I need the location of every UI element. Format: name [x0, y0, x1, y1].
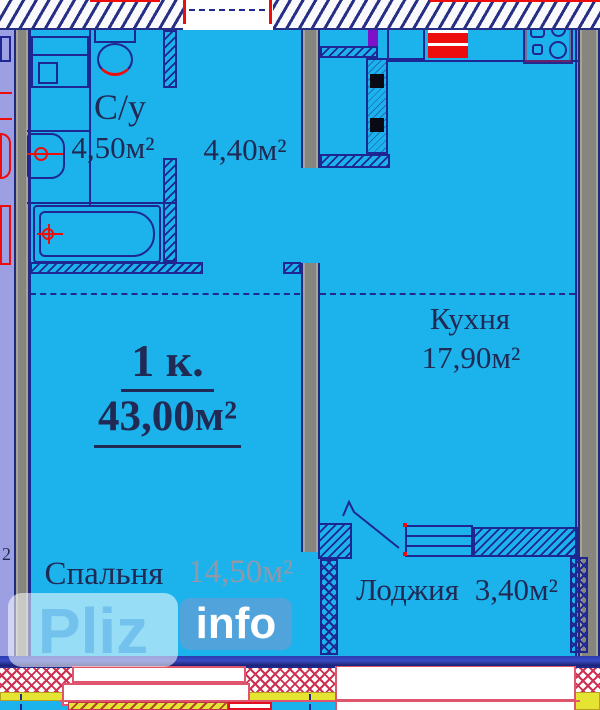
dashed-line [320, 293, 575, 295]
living-kitchen-wall [301, 263, 320, 552]
loggia-name: Лоджия [356, 572, 459, 607]
lower-floor-wall [68, 702, 228, 710]
neighbor-area-superscript: 2 [0, 544, 13, 565]
loggia-label: Лоджия 3,40м² [338, 572, 576, 608]
watermark-pliz: Pliz [8, 593, 178, 667]
bathtub-faucet-icon [42, 228, 54, 240]
sill-mark [403, 523, 407, 527]
vent-shaft [366, 58, 388, 154]
sill-line [407, 545, 471, 547]
kitchen-area: 17,90м² [406, 340, 536, 376]
bathroom-wall [163, 158, 177, 262]
neighbor-bathtub-icon [0, 205, 11, 265]
dashed-line [30, 293, 300, 295]
loggia-area: 3,40м² [475, 572, 558, 607]
bathroom-bottom-wall [30, 262, 203, 274]
bathroom-divider-line [27, 202, 177, 204]
loggia-pier-wall [320, 559, 338, 655]
washing-machine-drum [38, 62, 58, 84]
door-swing-icon [335, 498, 415, 558]
loggia-wall [473, 527, 578, 557]
entrance-jamb [183, 0, 186, 24]
entrance-jamb [269, 0, 272, 24]
floor-plan: 2 [0, 0, 600, 710]
watermark-info: info [180, 598, 292, 650]
lower-floor-wall [228, 702, 272, 710]
vent-shaft-wall [320, 154, 390, 168]
balcony-window-sill [405, 525, 473, 557]
neighbor-counter-line [0, 92, 12, 94]
kitchen-label: Кухня [414, 301, 526, 337]
vent-duct-icon [370, 74, 384, 88]
sill-line [407, 535, 471, 537]
wall-accent [430, 0, 600, 2]
outer-wall-top [0, 0, 600, 30]
bedroom-window [72, 666, 246, 683]
washing-machine-icon [31, 36, 89, 88]
drainboard-line [428, 43, 468, 46]
drainboard-line [428, 30, 468, 33]
loggia-window [335, 666, 576, 710]
vent-shaft-wall [320, 46, 378, 58]
bedroom-label: Спальня [30, 556, 178, 593]
washing-machine-line [33, 54, 87, 56]
burner-icon [549, 41, 567, 59]
bathroom-wall [163, 30, 177, 88]
sill-mark [403, 552, 407, 556]
unit-total-area: 43,00м² [94, 392, 241, 448]
toilet-bowl [97, 43, 133, 76]
bedroom-area: 14,50м² [178, 554, 303, 591]
burner-icon [532, 44, 543, 55]
wall-connector [283, 262, 301, 274]
bathroom-area: 4,50м² [58, 130, 168, 166]
window-wall [576, 666, 600, 692]
unit-rooms-label: 1 к. [121, 334, 214, 392]
bathroom-label: С/у [70, 86, 170, 128]
sink-faucet-icon [34, 147, 48, 161]
neighbor-sink-icon [0, 133, 11, 179]
entrance-opening [183, 0, 273, 30]
entrance-centerline [189, 9, 265, 11]
vent-duct-icon [370, 118, 384, 132]
hallway-area: 4,40м² [190, 132, 300, 168]
neighbor-counter-line [0, 118, 12, 120]
party-wall-left [14, 26, 30, 656]
window-wall [245, 666, 335, 692]
bathtub-icon [33, 205, 161, 263]
unit-summary: 1 к. 43,00м² [60, 334, 275, 448]
neighbor-fixture [0, 36, 11, 62]
dashed-line [309, 694, 311, 710]
wall-accent [90, 0, 160, 2]
dashed-line [20, 694, 22, 710]
